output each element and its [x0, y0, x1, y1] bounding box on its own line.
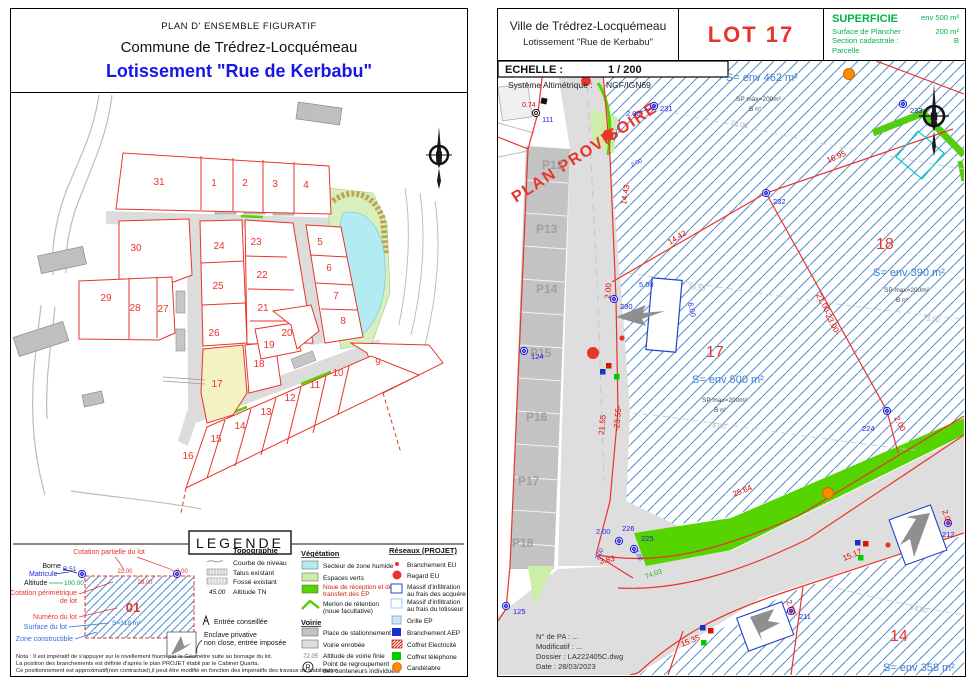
lot17-header: Ville de Trédrez-Locquémeau Lotissement … [498, 9, 965, 61]
surface-390: S= env 390 m² [873, 267, 945, 279]
legend-dim: 28.00 [137, 580, 153, 586]
voirie-regroupement-1: Point de regroupement [323, 661, 389, 668]
b-no: B n° [714, 406, 727, 414]
surface-462: S= env 462 m² [726, 72, 798, 84]
surface-358: S= env 358 m² [883, 662, 955, 674]
lot-number: 5 [317, 237, 323, 248]
sp-max: SP max=200m² [702, 397, 748, 404]
legend-cot-perim-1: Cotation périmétrique [11, 590, 77, 597]
dim: 21.55 [597, 414, 608, 435]
scale-label: ECHELLE : [505, 64, 563, 76]
legend-altitude-value: 100.00 [64, 580, 84, 587]
voirie-stationnement: Place de stationnement [323, 630, 391, 637]
parking-label: P16 [526, 410, 548, 424]
lot17-header-city-cell: Ville de Trédrez-Locquémeau Lotissement … [498, 9, 679, 60]
lot-number: 25 [212, 281, 224, 292]
lot-number: 28 [129, 303, 141, 314]
voirie-altitude: Altitude de voirie finie [323, 653, 385, 660]
topo-talus: Talus existant [233, 570, 274, 577]
matricule: 226 [622, 524, 635, 533]
surface-500: S= env 500 m² [692, 374, 764, 386]
overview-header: PLAN D' ENSEMBLE FIGURATIF Commune de Tr… [11, 9, 467, 93]
shore-lines [399, 188, 438, 345]
plan-page: PLAN D' ENSEMBLE FIGURATIF Commune de Tr… [0, 0, 972, 686]
titleblock-line: N° de PA : ... [536, 632, 578, 641]
matricule: 231 [660, 104, 673, 113]
section-value: B [954, 36, 959, 45]
lot-number: 30 [130, 243, 142, 254]
legend-vegetation: Végétation Secteur de zone humide Espace… [301, 549, 394, 615]
reseaux-branchement-eu: Branchement EU [407, 562, 457, 569]
matricule: 111 [542, 115, 553, 124]
legend-enclave-1: Enclave privative [204, 632, 257, 639]
parking-label: P17 [518, 474, 540, 488]
legend-matricule-label: Matricule [29, 571, 58, 578]
titleblock-line: Modificatif : ... [536, 642, 582, 651]
b-no: B n° [749, 105, 762, 113]
alti-label: Système Altimétrique : [508, 80, 593, 90]
reseaux-coffret-tel: Coffret téléphone [407, 654, 457, 661]
commune-title: Commune de Trédrez-Locquémeau [11, 39, 467, 56]
lot-number: 3 [272, 179, 278, 190]
lot17-surface-cell: SUPERFICIEenv 500 m² Surface de Plancher… [824, 9, 965, 60]
legend-dim: 3.00 [176, 569, 188, 575]
nota-line-1: Nota : Il est impératif de s'appuyer sur… [16, 654, 273, 660]
lot-number: 27 [157, 304, 169, 315]
veg-zone-humide: Secteur de zone humide [323, 563, 394, 570]
reseaux-grille-ep: Grille EP [407, 618, 433, 625]
legend-nota: Nota : Il est impératif de s'appuyer sur… [16, 654, 342, 674]
topo-fosse: Fossé existant [233, 579, 277, 586]
lot-number: 8 [340, 316, 346, 327]
lot17-number: 17 [706, 344, 724, 361]
topo-altitude-label: Altitude TN [233, 589, 267, 596]
lot-number: 21 [257, 303, 269, 314]
lot-number: 2 [242, 178, 248, 189]
sp-max: SP max=200m² [736, 96, 782, 103]
plancher-label: Surface de Plancher : [832, 27, 905, 36]
legend-numero-label: Numéro du lot [33, 614, 77, 621]
lot-number: 11 [310, 380, 321, 391]
lot-number: 6 [326, 263, 332, 274]
parking-label: P14 [536, 282, 558, 296]
lotissement-title: Lotissement "Rue de Kerbabu" [11, 61, 467, 82]
lot17-title-cell: LOT 17 [679, 9, 824, 60]
titleblock-line: Date : 28/03/2023 [536, 662, 596, 671]
topo-courbe: Courbe de niveau [233, 560, 287, 567]
legend-cotation-partielle: Cotation partielle du lot [73, 549, 145, 556]
reseaux-branchement-aep: Branchement AEP [407, 630, 460, 637]
reseaux-massif-lot-2: au frais du lotisseur [407, 606, 464, 613]
lot14-number: 14 [890, 628, 908, 645]
lot-number: 4 [303, 180, 309, 191]
legend-reseaux: Réseaux (PROJET) Branchement EU Regard E… [389, 546, 466, 672]
overview-map: 31 1 2 3 4 30 24 23 5 22 25 6 29 28 27 2… [11, 93, 466, 527]
lot17-panel: Ville de Trédrez-Locquémeau Lotissement … [497, 8, 966, 677]
lot-number: 20 [281, 328, 293, 339]
reseaux-coffret-elec: Coffret Electricité [407, 642, 457, 649]
lot-number: 26 [208, 328, 220, 339]
matricule: 230 [620, 302, 633, 311]
dim: 5.00 [639, 280, 654, 289]
titleblock-line: Dossier : LA222405C.dwg [536, 652, 623, 661]
dim: 2.00 [603, 282, 613, 299]
reseaux-massif-acq-2: au frais des acquéreurs [407, 591, 466, 598]
dim: 0.74 [522, 102, 536, 109]
dim: 2.00 [596, 527, 611, 536]
lotissement-subtitle: Lotissement "Rue de Kerbabu" [498, 37, 678, 48]
vegetation-title: Végétation [301, 549, 340, 558]
dim: 2.00 [626, 109, 641, 118]
voirie-title: Voirie [301, 618, 321, 627]
parcelle-label: Parcelle [832, 46, 859, 55]
section-label: Section cadastrale : [832, 36, 899, 45]
lot-number: 10 [332, 368, 344, 379]
reseaux-massif-acq-1: Massif d'infiltration [407, 584, 461, 591]
lot-number: 1 [211, 178, 217, 189]
north-arrow: N [426, 127, 452, 189]
lot-number: 15 [210, 434, 222, 445]
veg-merlon-1: Merlon de rétention [323, 601, 379, 608]
legend-borne-label: Borne [42, 563, 61, 570]
legend-altitude-label: Altitude [24, 580, 47, 587]
legend-surface-value: S=318 m² [112, 620, 141, 627]
lot-number: 18 [253, 359, 265, 370]
lot-title: LOT 17 [708, 22, 795, 48]
nota-line-3: Ce positionnement est approximatif(non c… [16, 668, 342, 674]
lot-number: 9 [375, 357, 381, 368]
topographie-title: Topographie [233, 546, 278, 555]
lot17-highlight [201, 345, 247, 423]
plancher-value: 200 m² [935, 27, 959, 36]
legend-matricule-value: B.51 [63, 566, 77, 573]
legend-dim: 22.00 [117, 569, 133, 575]
lot-number: 31 [153, 177, 165, 188]
reseaux-candelabre: Candélabre [407, 665, 441, 672]
alti-value: NGF/IGN69 [606, 80, 651, 90]
lot-number: 12 [284, 393, 296, 404]
lot-blocks [79, 153, 443, 513]
parking-label: P13 [536, 222, 558, 236]
matricule: 124 [531, 352, 544, 361]
north-letter: N [930, 111, 938, 123]
topo-altitude-value: 45.00 [209, 589, 226, 596]
matricule: 224 [862, 424, 875, 433]
nota-line-2: La position des branchements est définie… [16, 661, 259, 667]
lot-number: 24 [213, 241, 225, 252]
city-title: Ville de Trédrez-Locquémeau [498, 19, 678, 33]
legend-zone-label: Zone constructible [16, 636, 73, 643]
matricule: 233 [910, 106, 923, 115]
legend-enclave-2: non close, entrée imposée [204, 640, 286, 647]
lot-number: 7 [333, 291, 339, 302]
lot-number: 29 [100, 293, 112, 304]
voirie-altitude-value: 72.05 [303, 654, 319, 660]
legend-cot-perim-2: de lot [60, 598, 77, 605]
legend-numero-value: 01 [126, 600, 140, 615]
lot-number: 19 [263, 340, 275, 351]
veg-noue-1: Noue de réception et de [323, 584, 393, 591]
superficie-label: SUPERFICIE [832, 13, 898, 27]
matricule: 212 [942, 530, 955, 539]
reseaux-title: Réseaux (PROJET) [389, 546, 457, 555]
veg-espaces-verts: Espaces verts [323, 575, 365, 582]
matricule: 211 [799, 612, 811, 621]
lot-number: 23 [250, 237, 262, 248]
lot-number: 16 [182, 451, 194, 462]
parking-label: P18 [512, 536, 534, 550]
north-letter: N [435, 151, 442, 162]
matricule: 225 [641, 534, 654, 543]
lot17-map: ECHELLE : 1 / 200 Système Altimétrique :… [498, 61, 964, 675]
matricule: 125 [513, 607, 526, 616]
reseaux-massif-lot-1: Massif d'infiltration [407, 599, 461, 606]
lot-number: 17 [211, 379, 223, 390]
matricule: 232 [773, 197, 786, 206]
scale-value: 1 / 200 [608, 64, 642, 76]
voirie-enrobee: Voirie enrobée [323, 642, 365, 649]
plan-type-title: PLAN D' ENSEMBLE FIGURATIF [11, 21, 467, 32]
sp-max: SP max=200m² [884, 287, 930, 294]
lot18-number: 18 [876, 236, 894, 253]
veg-noue-2: transfert des EP [323, 591, 370, 598]
lot-number: 22 [256, 270, 268, 281]
legend-entree: Entrée conseillée [214, 619, 268, 626]
reseaux-regard-eu: Regard EU [407, 573, 439, 580]
legend-surface-label: Surface du lot [24, 624, 67, 631]
legend-voirie: Voirie Place de stationnement Voirie enr… [301, 618, 400, 675]
parking-label: P12 [542, 158, 564, 172]
b-no: B n° [896, 296, 909, 304]
lot-number: 13 [260, 407, 272, 418]
lot-number: 14 [234, 421, 246, 432]
legend: LEGENDE Borne Cotation partielle du lot … [11, 528, 466, 676]
superficie-value: env 500 m² [921, 13, 959, 27]
overview-panel: PLAN D' ENSEMBLE FIGURATIF Commune de Tr… [10, 8, 468, 677]
veg-merlon-2: (noue facultative) [323, 608, 373, 615]
